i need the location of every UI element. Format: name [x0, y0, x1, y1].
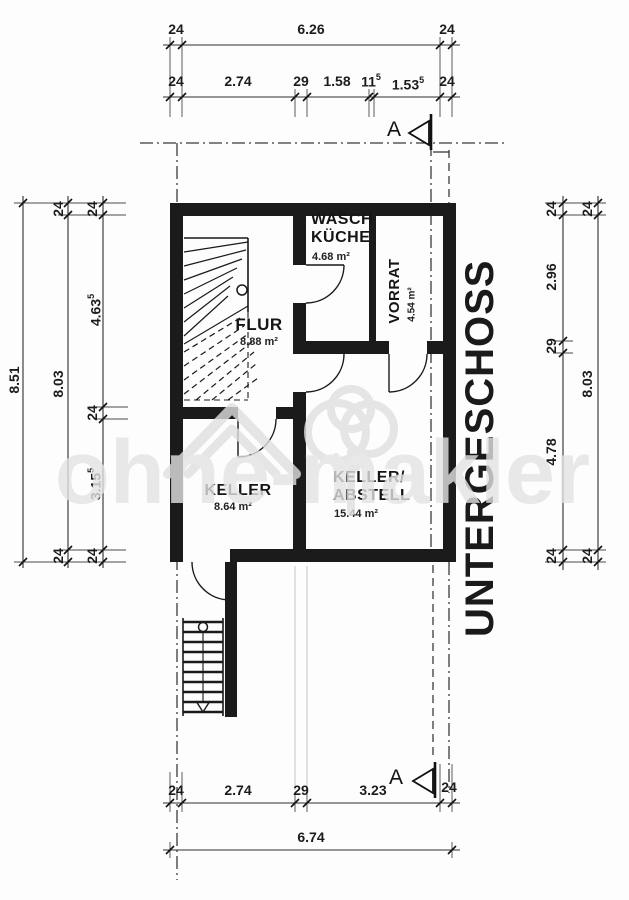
room-area-keller: 8.64 m² [193, 501, 273, 513]
stair-start-icon [199, 623, 208, 632]
dim-left2-b: 8.03 [49, 354, 67, 414]
room-area-abstell: 15.44 m² [334, 508, 378, 520]
door-waschkueche [306, 265, 344, 303]
dim-top1-c: 24 [417, 20, 477, 38]
dim-right1-b: 2.96 [542, 247, 560, 307]
dim-top2-g: 24 [417, 72, 477, 90]
section-arrow-top-icon [409, 121, 429, 145]
dim-left3-b: 4.635 [83, 280, 101, 340]
dim-left3-e: 24 [83, 526, 101, 586]
wall-bottom-corner [170, 549, 183, 562]
wall-bottom [230, 549, 456, 562]
room-label-waschkueche-line2: KÜCHE [311, 229, 370, 247]
dim-bottom1-b: 2.74 [208, 781, 268, 799]
wall-mid-horizontal [293, 341, 389, 354]
dim-left3-d: 3.155 [83, 454, 101, 514]
dim-right2-b: 8.03 [578, 354, 596, 414]
dim-right1-e: 24 [542, 526, 560, 586]
stair-newel-icon [237, 285, 247, 295]
dim-bottom1-e: 24 [419, 778, 479, 796]
room-label-flur: FLUR [219, 316, 299, 334]
room-label-keller: KELLER [188, 482, 288, 500]
dim-right2-a: 24 [578, 179, 596, 239]
dim-left2-a: 24 [49, 179, 67, 239]
door-keller [238, 419, 276, 457]
dim-right1-d: 4.78 [542, 422, 560, 482]
dim-bottom1-a: 24 [146, 781, 206, 799]
wall-flur-keller-left [183, 407, 238, 419]
dim-top2-a: 24 [146, 72, 206, 90]
room-label-vorrat: VORRAT [386, 246, 404, 336]
wall-mid-horizontal-stub [427, 341, 443, 354]
dim-bottom1-d: 3.23 [343, 781, 403, 799]
room-label-abstell-line2: ABSTELL [333, 487, 410, 505]
room-area-flur: 8.88 m² [219, 336, 299, 348]
exterior-stair [183, 618, 223, 716]
room-label-abstell-line1: KELLER/ [333, 469, 405, 487]
wall-left [170, 203, 183, 562]
wall-keller-divider [293, 392, 306, 549]
dim-left1-a: 8.51 [5, 350, 23, 410]
dim-top1-a: 24 [146, 20, 206, 38]
floor-title: UNTERGESCHOSS [457, 337, 503, 637]
dimension-lines [23, 45, 598, 850]
door-flur-abstell [306, 354, 344, 392]
wall-flur-keller-right [276, 407, 293, 419]
door-vorrat [389, 354, 427, 392]
dim-top1-b: 6.26 [281, 20, 341, 38]
dim-left3-c: 24 [83, 383, 101, 443]
room-label-waschkueche-line1: WASCH [311, 211, 373, 229]
dim-top2-b: 2.74 [208, 72, 268, 90]
dim-left2-c: 24 [49, 526, 67, 586]
dimension-ticks [19, 41, 602, 854]
room-area-waschkueche: 4.68 m² [312, 251, 350, 263]
dim-bottom1-c: 29 [271, 781, 331, 799]
section-label-top: A [387, 118, 401, 142]
dim-bottom2-a: 6.74 [281, 828, 341, 846]
dim-left3-a: 24 [83, 179, 101, 239]
floor-plan-page: WASCH KÜCHE 4.68 m² VORRAT 4.54 m² FLUR … [0, 0, 629, 900]
wall-exterior-stair [225, 562, 237, 717]
dim-right2-c: 24 [578, 526, 596, 586]
wall-flur-wasch-upper [293, 203, 306, 265]
dim-right1-a: 24 [542, 179, 560, 239]
wall-right [443, 203, 456, 562]
plan-linework [0, 0, 629, 900]
room-area-vorrat: 4.54 m² [407, 275, 418, 335]
dim-right1-c: 29 [542, 316, 560, 376]
